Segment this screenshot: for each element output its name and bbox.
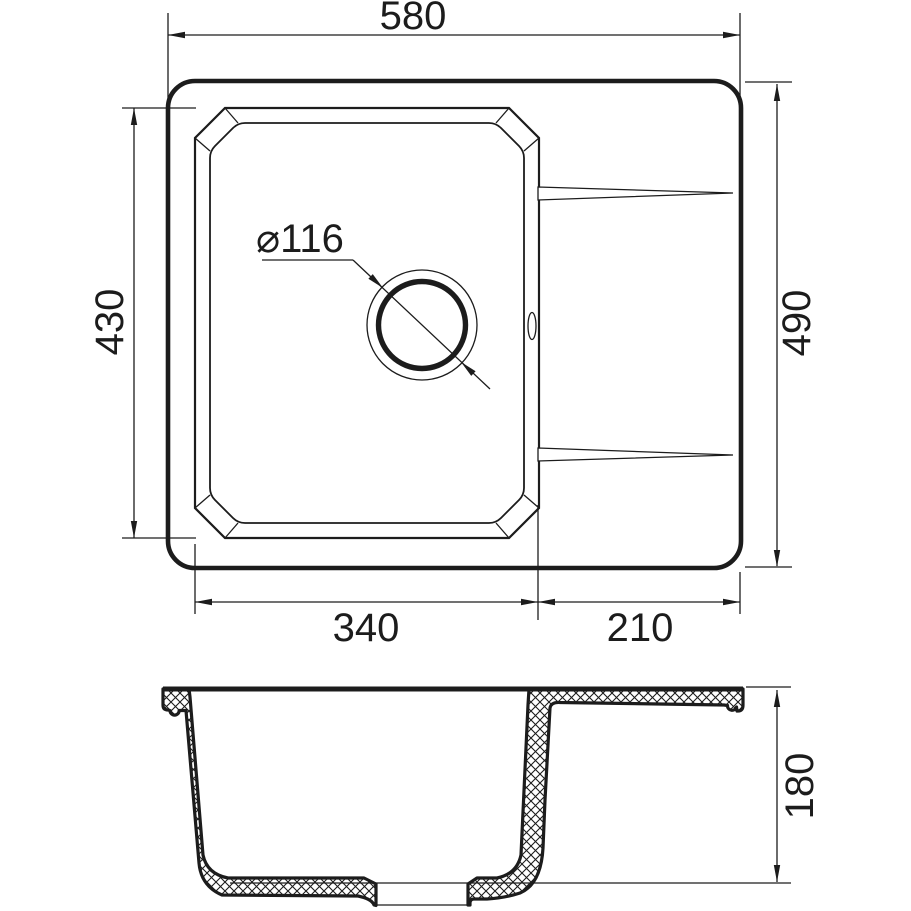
dim-drainboard-width: 210 <box>538 572 740 650</box>
sink-outline <box>168 81 741 568</box>
top-view <box>168 81 741 568</box>
section-view <box>163 689 743 906</box>
dim-drainboard-width-label: 210 <box>607 606 674 650</box>
section-left-wall <box>163 689 376 906</box>
sink-technical-drawing: 580 490 430 340 210 <box>0 0 911 911</box>
section-right-wall <box>468 689 743 905</box>
dim-bowl-depth-label: 180 <box>778 753 822 820</box>
dim-drain-diameter-label: ⌀116 <box>256 217 344 261</box>
dim-bowl-width-label: 340 <box>333 606 400 650</box>
dim-bowl-length-label: 430 <box>88 289 132 356</box>
dim-overall-width-label: 580 <box>380 0 447 38</box>
dim-overall-depth: 490 <box>745 82 819 567</box>
dim-overall-depth-label: 490 <box>775 290 819 357</box>
